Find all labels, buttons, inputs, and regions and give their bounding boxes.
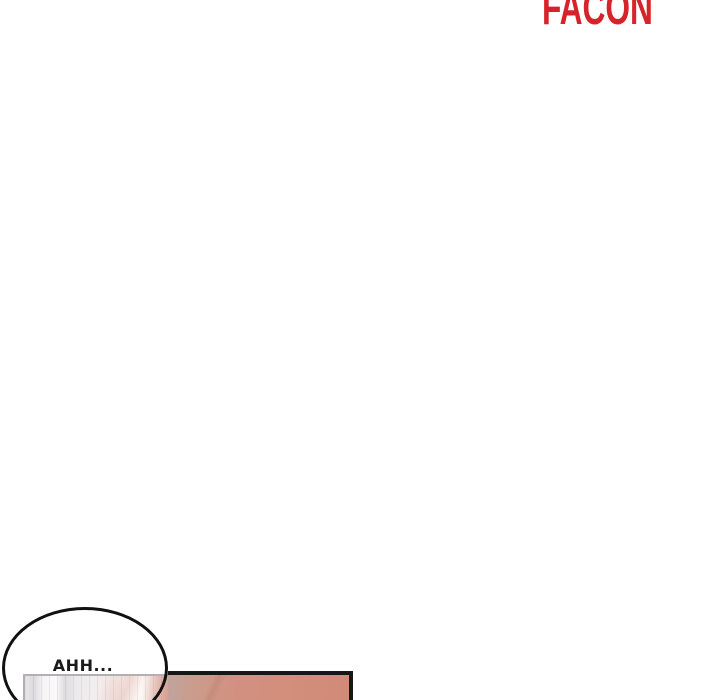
panel-next-scene — [168, 671, 353, 700]
webtoon-page: FACON AHH... — [0, 0, 720, 700]
watermark-logo: FACON — [542, 0, 653, 33]
speech-bubble-outline — [2, 607, 168, 700]
speech-bubble-text: AHH... — [52, 657, 114, 674]
